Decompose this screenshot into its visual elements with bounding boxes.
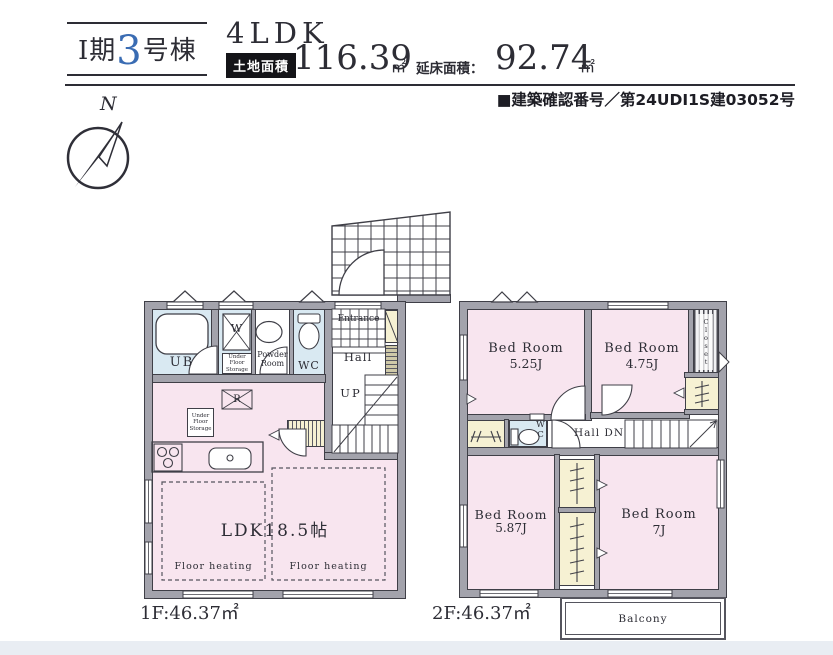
floorplan-2f: Balcony <box>458 290 730 652</box>
label-floor-heating-1: Floor heating <box>163 562 264 573</box>
label-under-floor-storage-1: Under Floor Storage <box>222 353 252 374</box>
label-washer: W <box>223 323 250 336</box>
unit-rule-bottom <box>67 74 207 76</box>
unit-rule-top <box>67 22 207 24</box>
unit-suffix: 号棟 <box>143 36 197 66</box>
land-area-badge: 土地面積 <box>226 53 296 78</box>
label-ub: UB <box>152 356 212 371</box>
header-rule <box>65 84 795 86</box>
label-2f-area: 2F:46.37㎡ <box>432 604 552 625</box>
label-hall-dn: Hall DN <box>570 427 628 439</box>
bedroom-3-label: Bed Room 5.87J <box>467 508 555 536</box>
compass-north-label: N <box>100 94 117 116</box>
bedroom-1-label: Bed Room 5.25J <box>467 342 585 371</box>
floor-area-unit: ㎡ <box>580 56 595 77</box>
wall-porch-ext <box>398 295 450 302</box>
floorplan-flyer: I期3号棟 4LDK 土地面積 116.39 ㎡ 延床面積： 92.74 ㎡ ■… <box>0 0 833 655</box>
label-balcony: Balcony <box>618 613 667 625</box>
label-up: UP <box>337 387 365 400</box>
label-wc-2f: WC <box>535 421 546 441</box>
header: I期3号棟 4LDK 土地面積 116.39 ㎡ 延床面積： 92.74 ㎡ ■… <box>0 0 833 110</box>
label-1f-area: 1F:46.37㎡ <box>140 604 260 625</box>
floorplan-1f: UB W Under Floor Storage Powder Room WC … <box>143 210 455 602</box>
balcony-inner-line: Balcony <box>565 602 721 635</box>
label-ldk: LDK18.5帖 <box>200 522 350 542</box>
bottom-strip <box>0 641 833 655</box>
1f-outer-wall <box>145 302 405 598</box>
floor-area-label: 延床面積： <box>416 57 484 77</box>
label-powder-room: Powder Room <box>253 350 292 368</box>
land-area-unit: ㎡ <box>391 56 406 77</box>
confirmation-number: ■建築確認番号／第24UDI1S建03052号 <box>400 88 795 110</box>
floor-area-value: 92.74 <box>495 38 592 78</box>
label-entrance: Entrance <box>332 314 385 324</box>
balcony: Balcony <box>560 597 726 640</box>
bedroom-4-label: Bed Room 7J <box>599 508 719 537</box>
label-closet-vertical: Closet <box>698 314 713 370</box>
unit-phase: I期 <box>78 36 116 66</box>
label-floor-heating-2: Floor heating <box>273 562 384 573</box>
unit-number: 3 <box>116 28 142 74</box>
label-refrigerator: R <box>222 394 252 406</box>
bedroom-2-label: Bed Room 4.75J <box>591 342 693 371</box>
unit-title: I期3号棟 <box>78 30 197 71</box>
label-hall-1f: Hall <box>332 351 384 364</box>
label-wc-1f: WC <box>293 360 325 373</box>
label-under-floor-storage-2: Under Floor Storage <box>187 408 214 437</box>
